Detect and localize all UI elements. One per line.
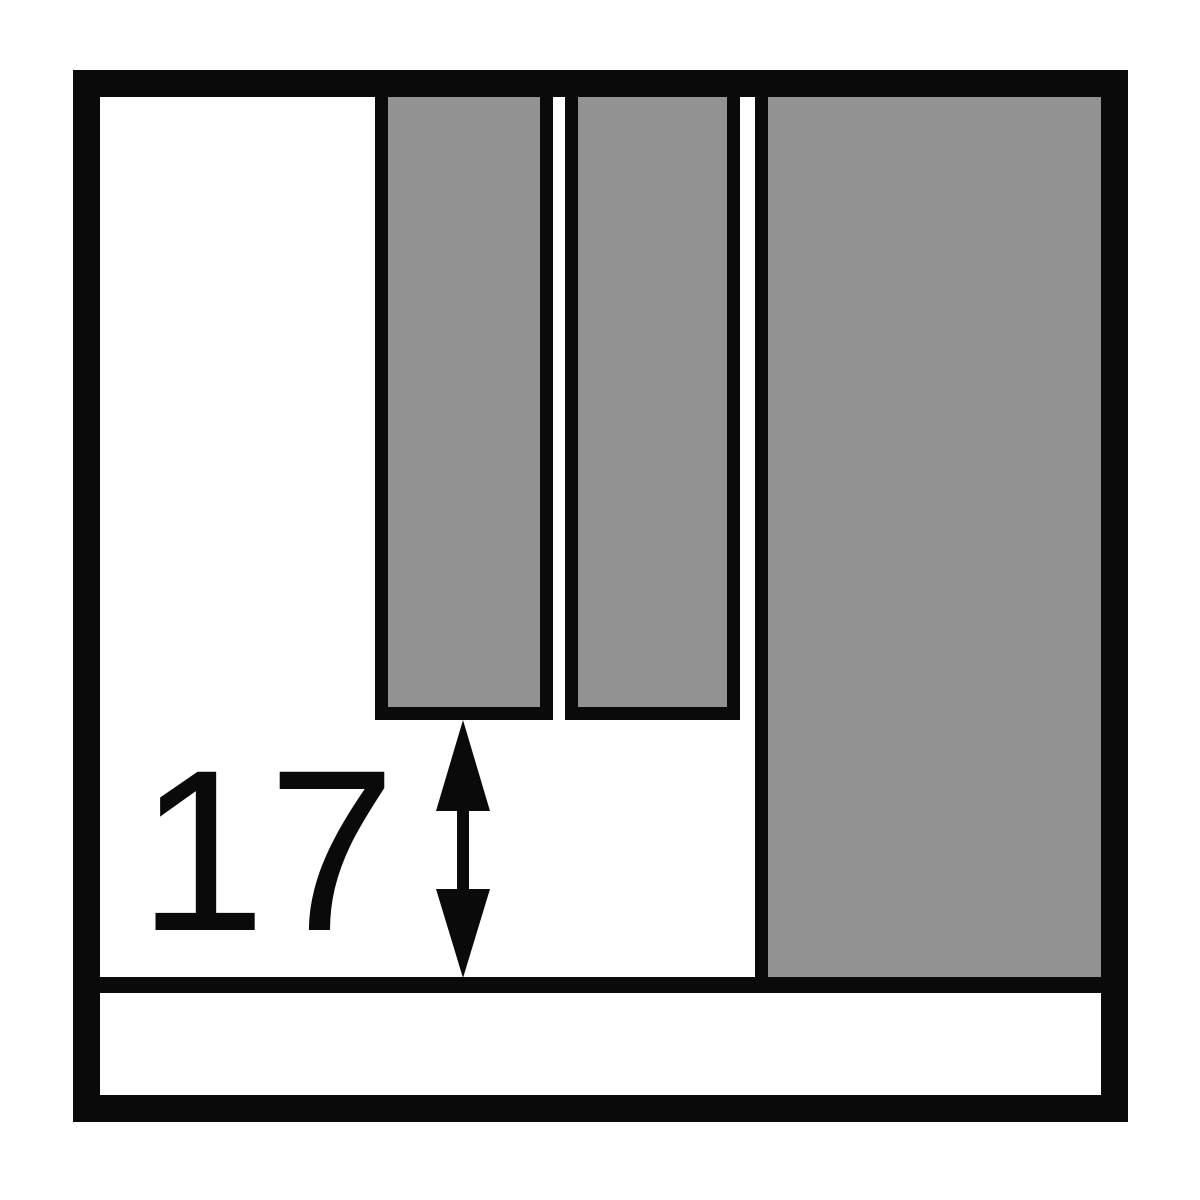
outer-frame: 17 xyxy=(73,70,1128,1122)
horizontal-rail-line xyxy=(100,977,1101,993)
slot-bar-middle xyxy=(565,97,740,720)
slot-bar-left xyxy=(375,97,553,720)
vertical-dimension-arrow-icon xyxy=(428,718,498,980)
diagram-canvas: 17 xyxy=(0,0,1200,1200)
dimension-label: 17 xyxy=(138,736,398,966)
slot-bar-right xyxy=(755,97,1101,977)
